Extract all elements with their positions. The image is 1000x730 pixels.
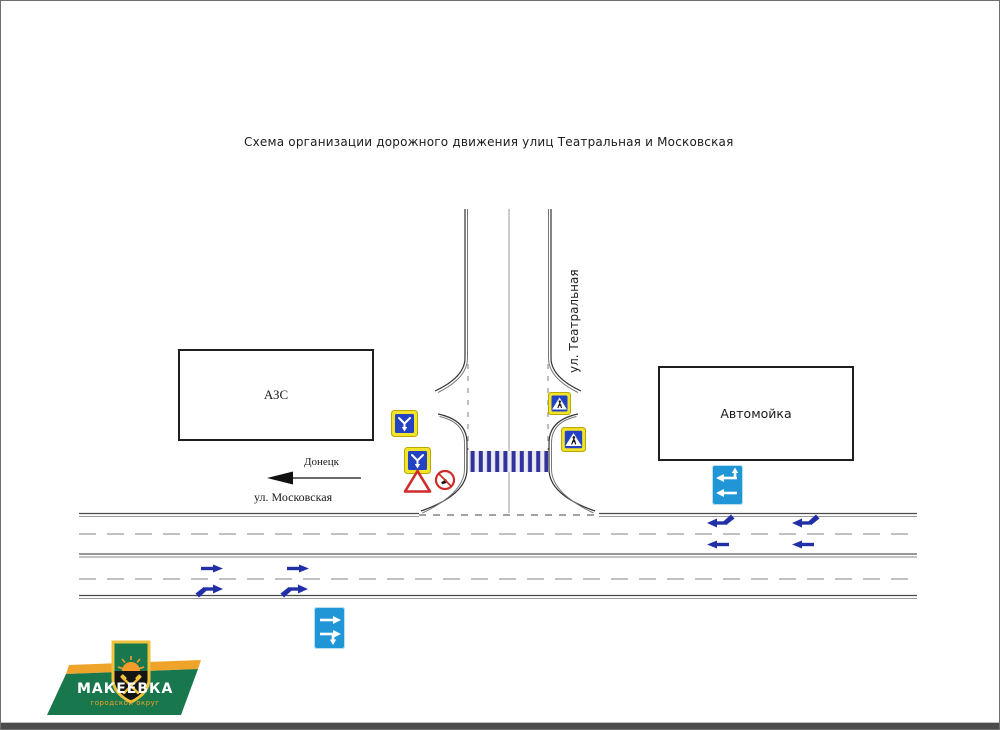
pedestrian-crossing-sign-icon [561,427,586,452]
prohibition-sign-icon [434,469,456,491]
lane-direction-sign-icon [391,410,418,437]
building-carwash: Автомойка [658,366,854,461]
lanes-direction-board-icon [314,607,345,649]
scheme-page: Схема организации дорожного движения ули… [0,0,1000,730]
pedestrian-crossing-sign-icon [548,392,571,415]
building-carwash-label: Автомойка [720,406,791,421]
lane-arrows-westbound [707,515,820,549]
building-azs: АЗС [178,349,374,441]
direction-arrow-donetsk [267,472,361,485]
logo-city-name: МАКЕЕВКА [77,681,173,697]
zebra-crossing [469,451,548,472]
road-diagram [1,1,999,729]
street-label-teatralnaya: ул. Театральная [567,269,581,373]
logo-subtitle: городской округ [77,699,173,707]
give-way-sign-icon [403,469,432,494]
building-azs-label: АЗС [264,387,288,403]
street-label-moskovskaya: ул. Московская [254,490,332,505]
direction-label-donetsk: Донецк [304,456,339,468]
horizontal-road-lines [79,514,917,599]
lanes-direction-board-icon [712,465,743,505]
makeevka-logo [41,637,221,723]
lane-arrows-eastbound [196,565,310,598]
page-bottom-edge [1,722,999,730]
